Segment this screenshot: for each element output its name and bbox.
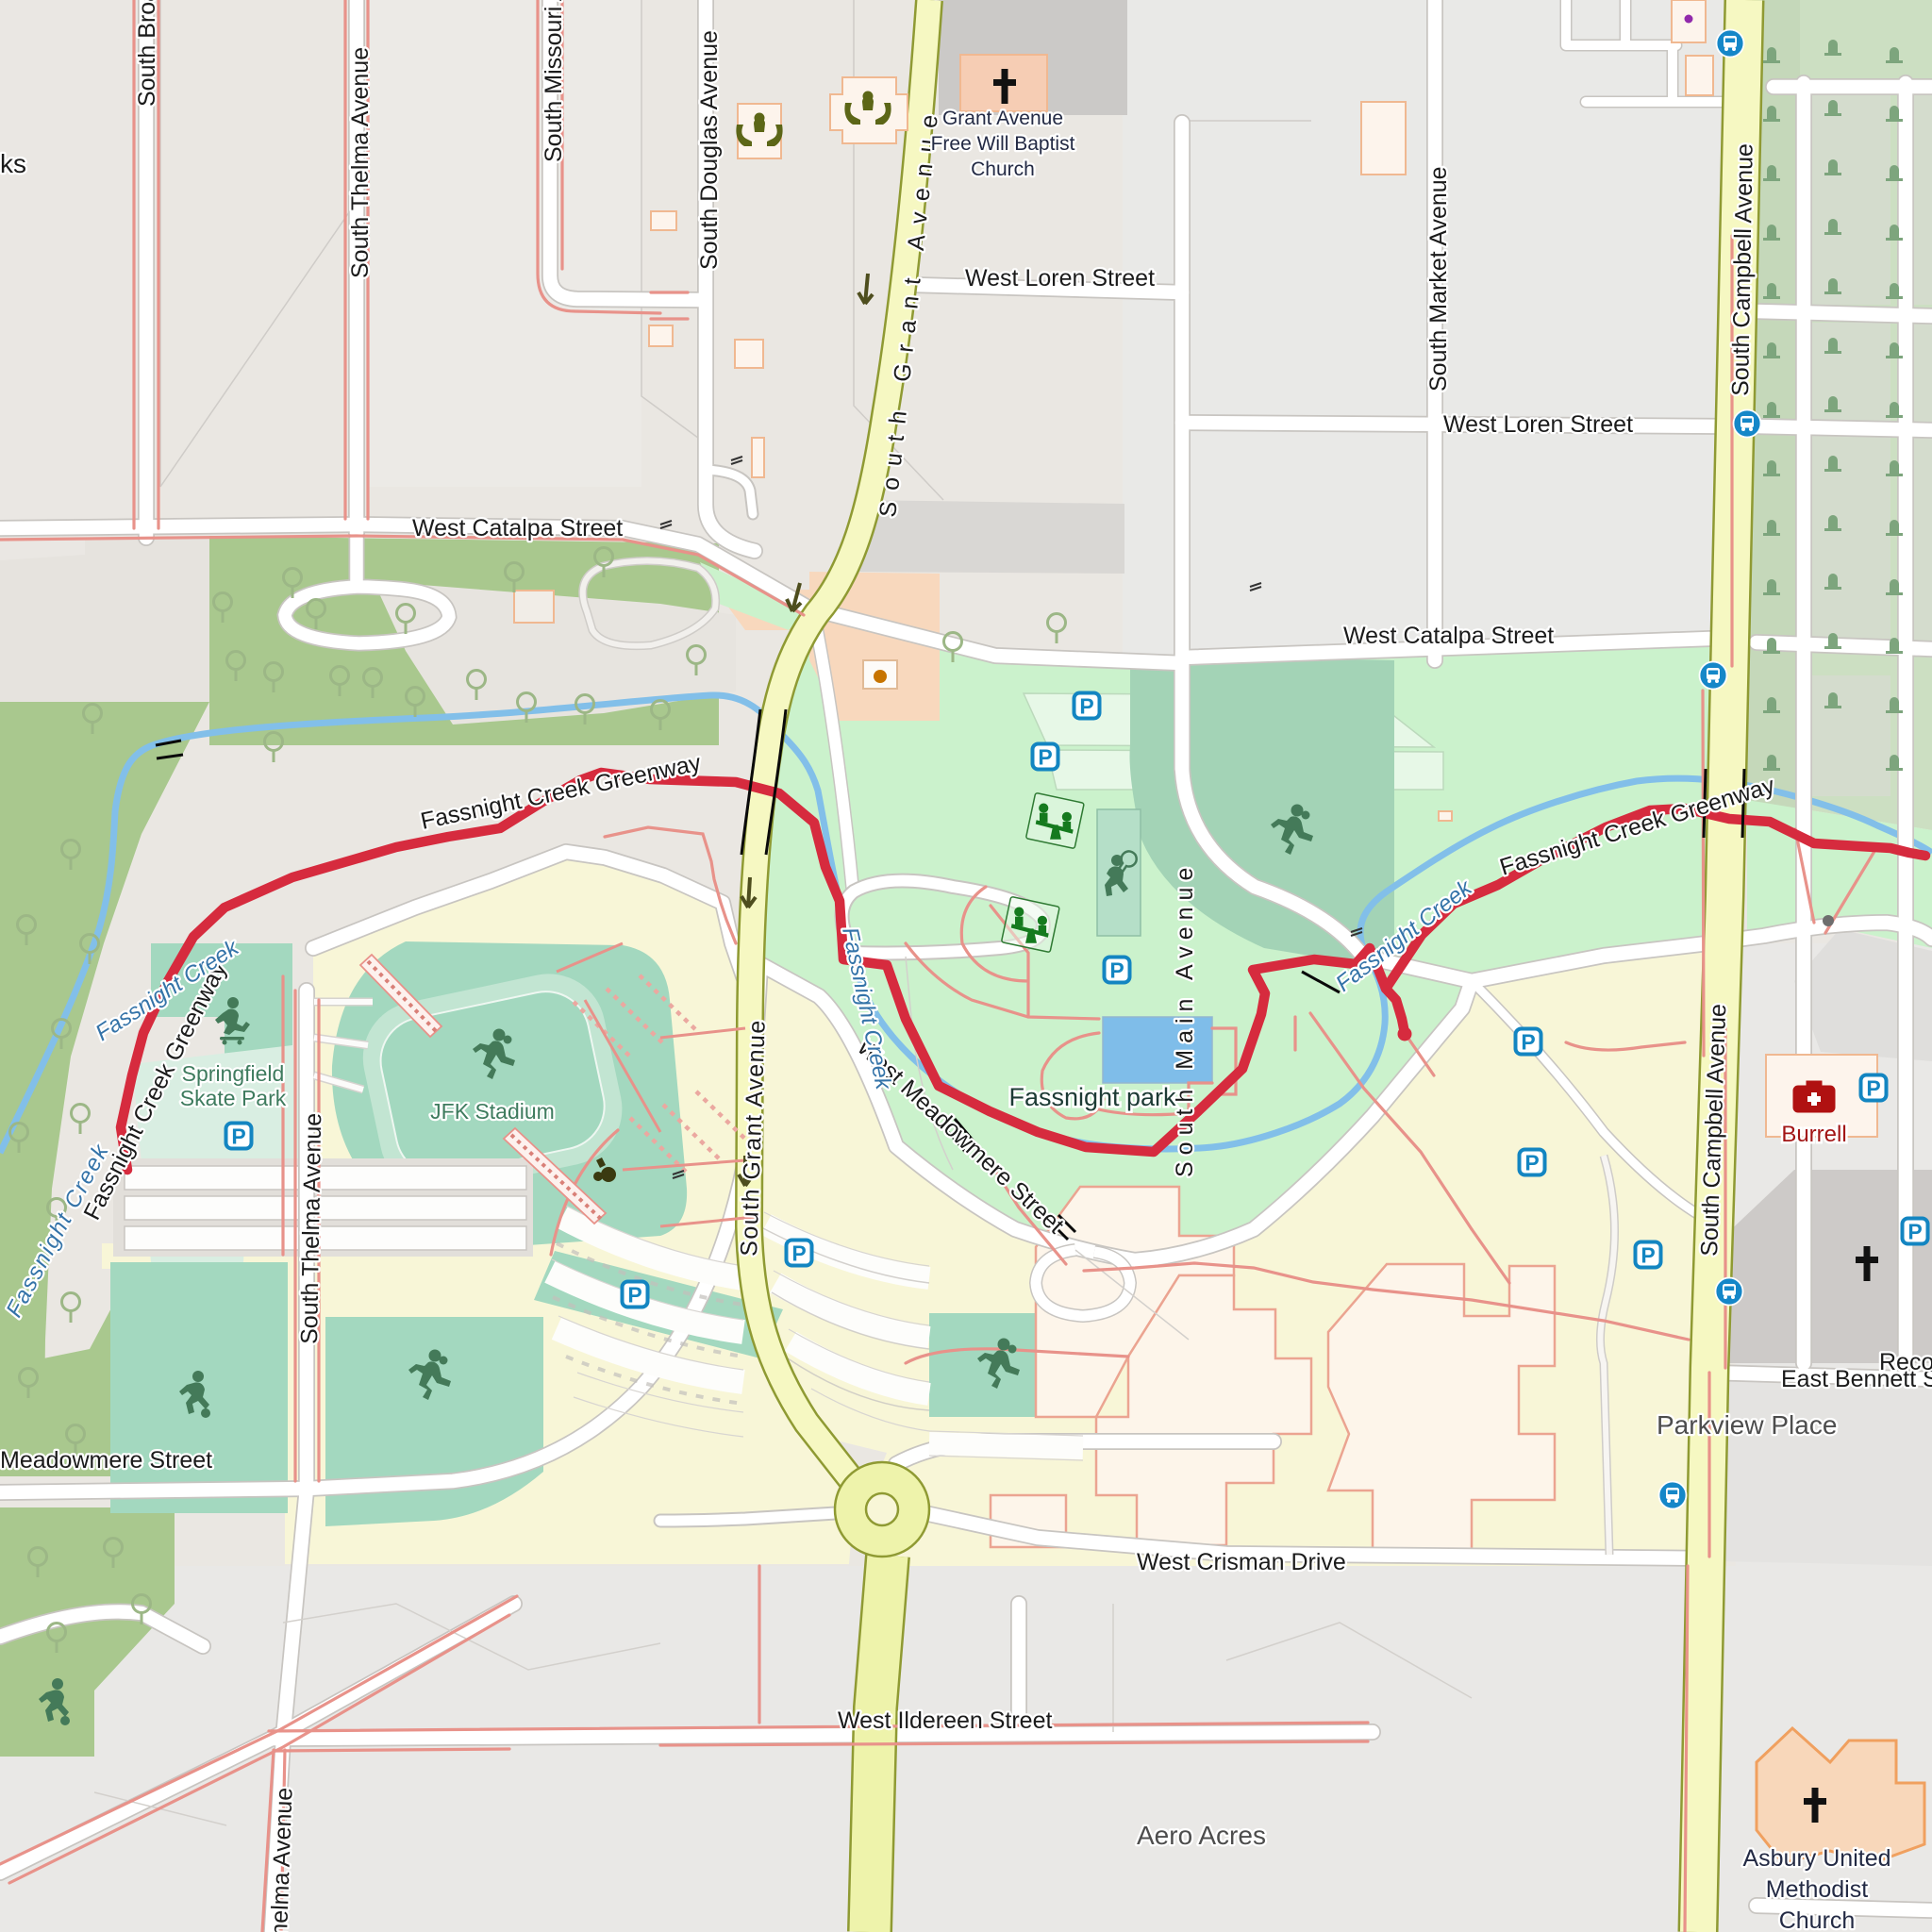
svg-text:West Crisman Drive: West Crisman Drive [1137,1549,1346,1575]
svg-text:South Broadway Avenue: South Broadway Avenue [134,0,160,107]
svg-text:Skate Park: Skate Park [180,1086,287,1110]
svg-text:JFK Stadium: JFK Stadium [430,1099,555,1124]
svg-text:South Thelma Avenue: South Thelma Avenue [347,47,374,278]
svg-text:Aero Acres: Aero Acres [1137,1821,1266,1850]
svg-text:Meadowmere Street: Meadowmere Street [0,1447,212,1474]
svg-text:West Ildereen Street: West Ildereen Street [838,1707,1052,1734]
svg-text:South Thelma Avenue: South Thelma Avenue [296,1113,326,1345]
svg-text:West Catalpa Street: West Catalpa Street [412,515,623,541]
svg-text:Springfield: Springfield [182,1061,285,1086]
svg-text:Asbury United: Asbury United [1742,1845,1890,1872]
svg-text:South Missouri Avenue: South Missouri Avenue [541,0,567,162]
svg-text:ks: ks [0,149,26,178]
svg-text:West Catalpa Street: West Catalpa Street [1343,623,1554,649]
svg-text:Church: Church [971,158,1035,180]
svg-text:South Douglas Avenue: South Douglas Avenue [696,30,723,270]
svg-text:South Market Avenue: South Market Avenue [1425,166,1452,391]
svg-text:Grant Avenue: Grant Avenue [942,108,1063,129]
svg-text:Fassnight park: Fassnight park [1008,1083,1176,1111]
svg-text:West Loren Street: West Loren Street [965,265,1155,291]
svg-text:South Main Avenue: South Main Avenue [1172,861,1198,1177]
svg-text:Free Will Baptist: Free Will Baptist [931,133,1075,155]
svg-text:Burrell: Burrell [1781,1122,1846,1147]
svg-text:Reco: Reco [1879,1349,1932,1375]
svg-text:West Loren Street: West Loren Street [1443,411,1633,438]
svg-text:South Campbell Avenue: South Campbell Avenue [1727,143,1758,396]
svg-text:Methodist: Methodist [1766,1876,1868,1903]
svg-text:Parkview Place: Parkview Place [1657,1410,1837,1440]
svg-text:Church: Church [1779,1907,1856,1932]
